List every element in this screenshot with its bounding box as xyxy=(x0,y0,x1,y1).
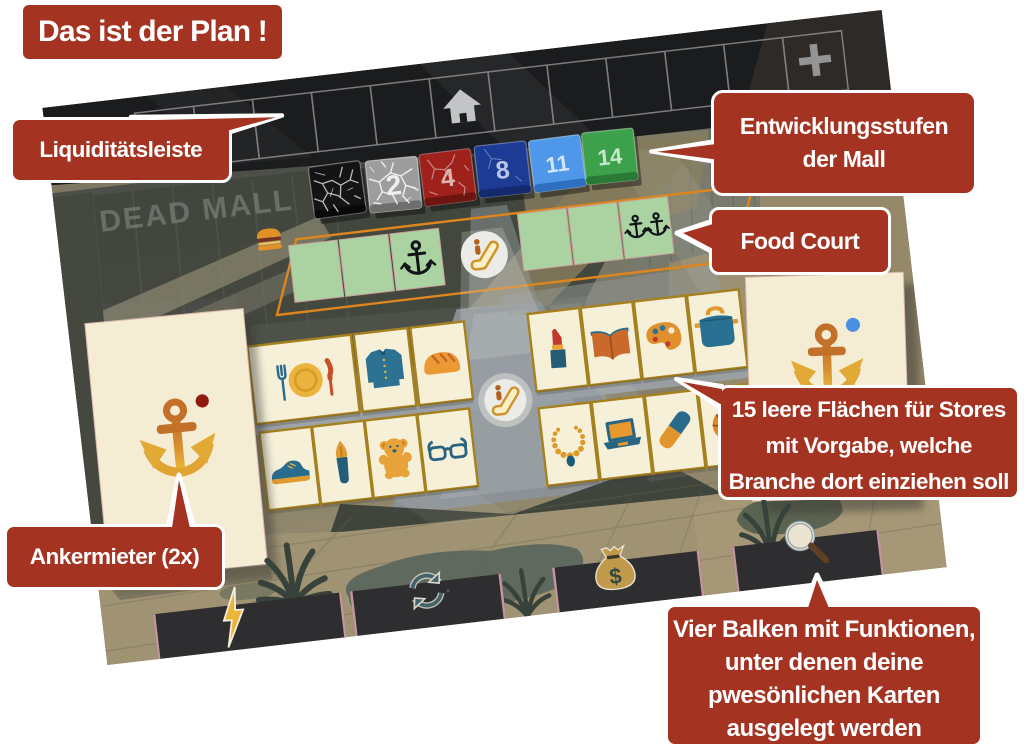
svg-text:8: 8 xyxy=(494,155,511,184)
svg-text:$: $ xyxy=(607,562,622,588)
svg-text:14: 14 xyxy=(596,143,624,170)
svg-text:4: 4 xyxy=(439,163,456,193)
svg-text:2: 2 xyxy=(384,168,403,200)
svg-text:11: 11 xyxy=(544,150,570,178)
